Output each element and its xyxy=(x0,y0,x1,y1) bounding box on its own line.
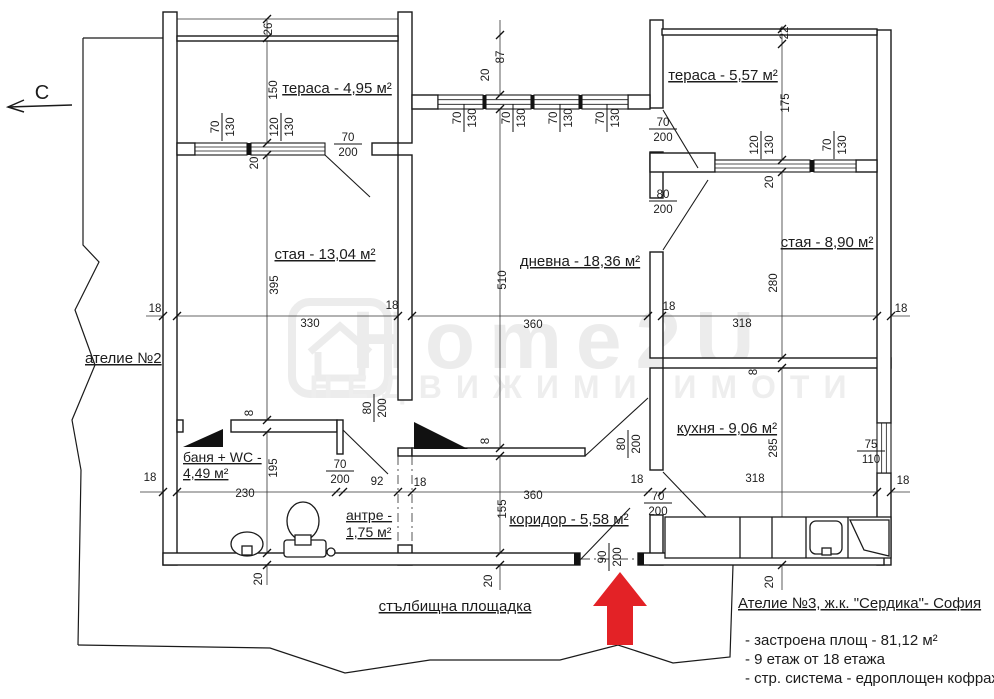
dimension-label: 26 xyxy=(263,23,275,36)
dimension-fraction-denominator: 130 xyxy=(284,117,296,136)
left-break-line xyxy=(72,38,99,645)
dimension-fraction-numerator: 70 xyxy=(501,112,513,125)
wall-segment xyxy=(163,12,177,565)
dimension-fraction-numerator: 70 xyxy=(595,112,607,125)
dimension-label: 87 xyxy=(495,51,507,64)
wall-segment xyxy=(412,95,438,109)
bath-sink-drain xyxy=(242,546,252,555)
dimension-fraction-denominator: 130 xyxy=(563,108,575,127)
door-swing-line xyxy=(343,430,388,474)
dimension-label: 18 xyxy=(386,300,399,312)
window-mullion xyxy=(531,95,534,109)
dimension-label: 18 xyxy=(149,303,162,315)
room-label-room-left: стая - 13,04 м² xyxy=(274,246,375,263)
dimension-fraction-denominator: 200 xyxy=(338,147,357,159)
door-leaf xyxy=(414,422,468,449)
dimension-fraction-numerator: 120 xyxy=(749,135,761,154)
entrance-arrow-icon xyxy=(593,572,647,645)
dimension-label: 20 xyxy=(480,69,492,82)
wall-segment xyxy=(663,358,891,368)
window-mullion xyxy=(810,160,814,172)
window-symbol xyxy=(251,143,325,155)
dimension-label: 8 xyxy=(244,410,256,416)
wall-segment xyxy=(177,420,183,432)
wall-segment xyxy=(337,420,343,454)
room-label-stairwell: стълбищна площадка xyxy=(379,598,532,615)
window-mullion xyxy=(483,95,486,109)
floor-plan-page: Home2U НЕДВИЖИМИ ИМОТИ 26150208720221752… xyxy=(0,0,994,699)
window-symbol xyxy=(195,143,247,155)
wall-segment xyxy=(398,12,412,143)
dimension-fraction-numerator: 75 xyxy=(865,439,878,451)
room-label-kitchen: кухня - 9,06 м² xyxy=(677,420,777,437)
wall-segment xyxy=(398,448,412,456)
dimension-label: 318 xyxy=(745,473,764,485)
dimension-label: 155 xyxy=(497,499,509,518)
dimension-fraction-denominator: 200 xyxy=(631,434,643,453)
dimension-fraction-numerator: 120 xyxy=(269,117,281,136)
room-label-living: дневна - 18,36 м² xyxy=(520,253,640,270)
info-title: Ателие №3, ж.к. "Сердика"- София xyxy=(738,595,981,612)
dimension-label: 18 xyxy=(663,301,676,313)
dimension-label: 318 xyxy=(732,318,751,330)
dimension-label: 280 xyxy=(768,273,780,292)
info-line-system: - стр. система - едроплощен кофраж xyxy=(745,670,994,687)
dimension-fraction: 70200 xyxy=(644,491,672,518)
dimension-fraction-denominator: 200 xyxy=(330,474,349,486)
dimension-fraction-denominator: 130 xyxy=(610,108,622,127)
window-symbol xyxy=(486,95,531,109)
door-jamb xyxy=(638,553,644,565)
dimension-label: 510 xyxy=(497,270,509,289)
wall-segment xyxy=(372,143,398,155)
dimension-label: 18 xyxy=(895,303,908,315)
wall-segment xyxy=(877,30,891,423)
dimension-label: 175 xyxy=(780,93,792,112)
dimension-fraction-numerator: 70 xyxy=(334,459,347,471)
wall-segment xyxy=(856,160,877,172)
dimension-label: 195 xyxy=(268,458,280,477)
north-arrow-line xyxy=(8,105,72,107)
window-symbol xyxy=(715,160,810,172)
toilet-flush-icon xyxy=(327,548,335,556)
wall-segment xyxy=(650,153,715,172)
watermark: Home2U НЕДВИЖИМИ ИМОТИ xyxy=(292,295,860,405)
dimension-label: 20 xyxy=(253,573,265,586)
wall-segment xyxy=(650,368,663,470)
window-symbol xyxy=(438,95,483,109)
kitchen-fixtures xyxy=(665,517,891,558)
dimension-fraction-denominator: 110 xyxy=(862,454,880,466)
dimension-label: 8 xyxy=(748,369,760,375)
wall-segment xyxy=(231,420,337,432)
north-arrow: С xyxy=(8,82,72,112)
dimension-label: 92 xyxy=(371,476,384,488)
window-symbol xyxy=(814,160,856,172)
room-label-bath-line2: 4,49 м² xyxy=(183,465,229,481)
dimension-label: 20 xyxy=(249,157,261,170)
dimension-label: 20 xyxy=(483,575,495,588)
dimension-fraction: 70130 xyxy=(210,113,237,141)
dimension-fraction-denominator: 200 xyxy=(648,506,667,518)
toilet-bowl-icon xyxy=(287,502,319,540)
watermark-subtext: НЕДВИЖИМИ ИМОТИ xyxy=(310,369,861,405)
info-line-floor: - 9 етаж от 18 етажа xyxy=(745,651,886,668)
wall-segment xyxy=(177,36,398,41)
room-label-hall-line1: антре - xyxy=(346,507,392,523)
door-swing-line xyxy=(325,155,370,197)
room-label-bath-line1: баня + WC - xyxy=(183,449,262,465)
window-symbol xyxy=(534,95,579,109)
dimension-fraction-numerator: 70 xyxy=(652,491,665,503)
dimension-fraction-numerator: 90 xyxy=(597,551,609,564)
dimension-fraction-denominator: 130 xyxy=(225,117,237,136)
dimension-fraction-denominator: 130 xyxy=(516,108,528,127)
dimension-label: 395 xyxy=(269,275,281,294)
dimension-fraction-numerator: 70 xyxy=(210,121,222,134)
dimension-label: 18 xyxy=(631,474,644,486)
wall-segment xyxy=(650,252,663,358)
dimension-fraction-denominator: 200 xyxy=(653,132,672,144)
dimension-label: 360 xyxy=(523,490,542,502)
north-label: С xyxy=(35,82,49,104)
window-symbol xyxy=(582,95,628,109)
dimension-fraction: 120130 xyxy=(749,131,776,159)
toilet-seat xyxy=(295,535,311,545)
window-mullion xyxy=(579,95,582,109)
dimension-label: 8 xyxy=(480,438,492,444)
bathroom-fixtures xyxy=(231,502,335,557)
kitchen-sink-faucet xyxy=(822,548,831,555)
room-label-terrace-left: тераса - 4,95 м² xyxy=(282,80,392,97)
dimension-fraction-numerator: 70 xyxy=(657,117,670,129)
dimension-label: 360 xyxy=(523,319,542,331)
room-label-atelier2: ателие №2 xyxy=(85,350,162,367)
info-block: Ателие №3, ж.к. "Сердика"- София - застр… xyxy=(738,595,994,687)
dimension-label: 20 xyxy=(764,576,776,589)
dimension-label: 18 xyxy=(414,477,427,489)
door-swing-line xyxy=(663,472,708,519)
wall-segment xyxy=(177,143,195,155)
dimension-label: 285 xyxy=(768,438,780,457)
room-label-room-right: стая - 8,90 м² xyxy=(781,234,874,251)
windows xyxy=(195,95,891,473)
dimension-label: 18 xyxy=(144,472,157,484)
dimension-fraction: 70200 xyxy=(334,132,362,159)
wall-segment xyxy=(628,95,650,109)
dimension-fraction-denominator: 200 xyxy=(612,547,624,566)
wall-segment xyxy=(163,553,580,565)
dimension-fraction: 90200 xyxy=(597,543,624,571)
dimension-fraction-numerator: 70 xyxy=(342,132,355,144)
dimension-fraction: 70130 xyxy=(822,131,849,159)
bottom-break-line xyxy=(78,565,733,673)
window-mullion xyxy=(247,143,251,155)
dimension-fraction-numerator: 70 xyxy=(822,139,834,152)
dimension-label: 230 xyxy=(235,488,254,500)
dimension-label: 150 xyxy=(268,80,280,99)
dimension-fraction: 80200 xyxy=(616,430,643,458)
dimension-fraction-numerator: 80 xyxy=(616,438,628,451)
dimension-fraction-denominator: 130 xyxy=(837,135,849,154)
door-jamb xyxy=(574,553,580,565)
dimension-label: 20 xyxy=(764,176,776,189)
dimension-fraction-denominator: 130 xyxy=(467,108,479,127)
dimension-fraction-numerator: 70 xyxy=(452,112,464,125)
door-leaf xyxy=(183,429,223,447)
dimension-label: 18 xyxy=(897,475,910,487)
floor-plan-drawing: Home2U НЕДВИЖИМИ ИМОТИ 26150208720221752… xyxy=(0,0,994,699)
dimension-label: 330 xyxy=(300,318,319,330)
dimension-fraction: 120130 xyxy=(269,113,296,141)
room-label-terrace-right: тераса - 5,57 м² xyxy=(668,67,778,84)
wall-segment xyxy=(398,155,412,400)
room-label-corridor: коридор - 5,58 м² xyxy=(509,511,628,528)
dimension-fraction-numerator: 70 xyxy=(548,112,560,125)
room-label-hall-line2: 1,75 м² xyxy=(346,524,392,540)
dimension-fraction: 70200 xyxy=(649,117,677,144)
dimension-fraction-numerator: 80 xyxy=(657,189,670,201)
info-line-area: - застроена площ - 81,12 м² xyxy=(745,632,938,649)
wall-segment xyxy=(662,29,877,35)
wall-segment xyxy=(650,20,663,108)
dimension-fraction: 70200 xyxy=(326,459,354,486)
dimension-label: 22 xyxy=(779,27,791,40)
dimension-fraction-denominator: 200 xyxy=(377,398,389,417)
dimension-fraction-denominator: 130 xyxy=(764,135,776,154)
dimension-fraction-numerator: 80 xyxy=(362,402,374,415)
dimension-fraction-denominator: 200 xyxy=(653,204,672,216)
